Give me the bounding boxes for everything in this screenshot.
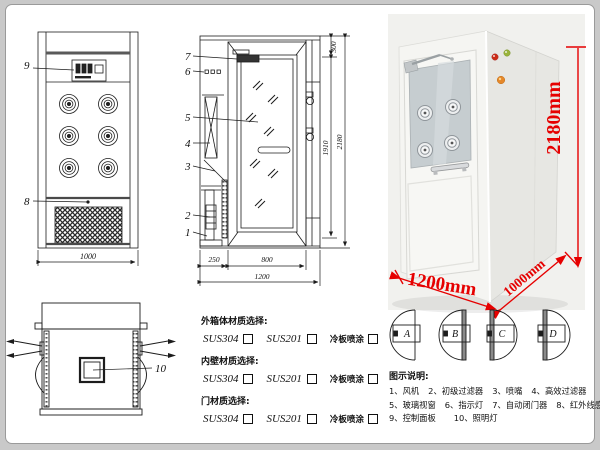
- option-label: SUS304: [203, 413, 238, 425]
- legend-item-5: 5、玻璃视窗: [389, 399, 436, 413]
- material-checkbox-sus201[interactable]: [307, 334, 317, 344]
- material-group-title: 内壁材质选择:: [201, 354, 386, 367]
- material-checkbox-coldplate[interactable]: [368, 334, 378, 344]
- legend-item-3: 3、喷嘴: [492, 385, 522, 399]
- material-checkbox-sus201[interactable]: [307, 374, 317, 384]
- option-label: SUS201: [266, 413, 301, 425]
- legend-item-8: 8、红外线感应器: [556, 399, 600, 413]
- option-label: SUS201: [266, 333, 301, 345]
- material-group-inner-wall: 内壁材质选择: SUS304 SUS201 冷板喷涂: [201, 354, 386, 385]
- material-selection-form: 外箱体材质选择: SUS304 SUS201 冷板喷涂 内壁材质选择: SUS3…: [201, 314, 386, 434]
- material-group-title: 外箱体材质选择:: [201, 314, 386, 327]
- material-checkbox-sus304[interactable]: [243, 334, 253, 344]
- option-label: 冷板喷涂: [330, 373, 364, 385]
- material-group-door: 门材质选择: SUS304 SUS201 冷板喷涂: [201, 394, 386, 425]
- legend: 图示说明: 1、风机 2、初级过滤器 3、喷嘴 4、高效过滤器 5、玻璃视窗 6…: [389, 369, 589, 426]
- option-label: SUS304: [203, 333, 238, 345]
- material-group-title: 门材质选择:: [201, 394, 386, 407]
- option-label: SUS304: [203, 373, 238, 385]
- material-checkbox-sus304[interactable]: [243, 414, 253, 424]
- legend-item-4: 4、高效过滤器: [531, 385, 586, 399]
- legend-title: 图示说明:: [389, 369, 589, 382]
- legend-item-2: 2、初级过滤器: [428, 385, 483, 399]
- material-checkbox-sus201[interactable]: [307, 414, 317, 424]
- legend-item-10: 10、照明灯: [454, 412, 498, 426]
- material-group-outer-box: 外箱体材质选择: SUS304 SUS201 冷板喷涂: [201, 314, 386, 345]
- legend-item-9: 9、控制面板: [389, 412, 436, 426]
- material-checkbox-coldplate[interactable]: [368, 414, 378, 424]
- spec-sheet-page: 9 8 1000: [0, 0, 600, 450]
- legend-item-1: 1、风机: [389, 385, 419, 399]
- material-checkbox-sus304[interactable]: [243, 374, 253, 384]
- option-label: SUS201: [266, 373, 301, 385]
- material-checkbox-coldplate[interactable]: [368, 374, 378, 384]
- option-label: 冷板喷涂: [330, 333, 364, 345]
- option-label: 冷板喷涂: [330, 413, 364, 425]
- legend-item-7: 7、自动闭门器: [492, 399, 547, 413]
- legend-item-6: 6、指示灯: [445, 399, 483, 413]
